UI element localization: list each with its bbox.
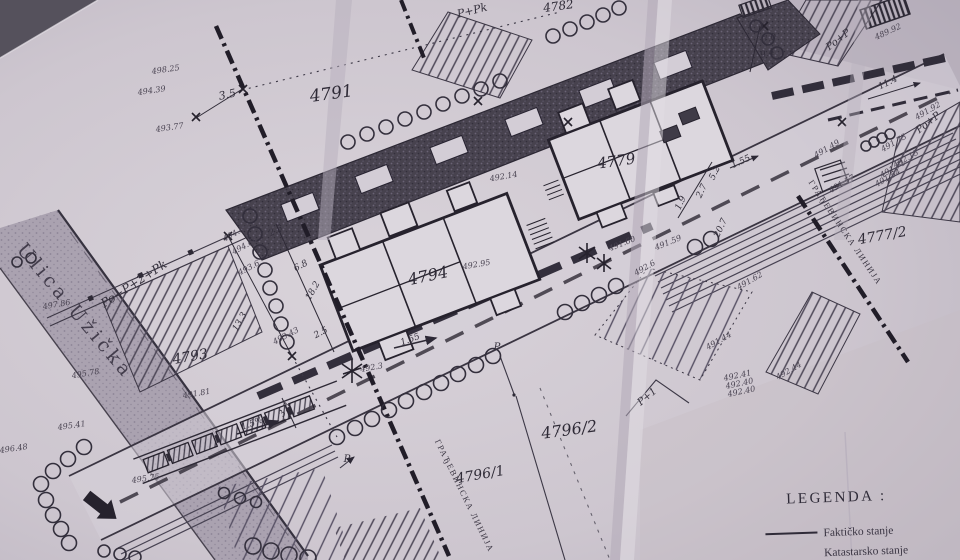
scanned-site-plan: LEGENDA : Faktičko stanje Katastarsko st… <box>0 0 960 560</box>
site-plan-canvas: LEGENDA : Faktičko stanje Katastarsko st… <box>0 0 960 560</box>
building-storey-label: P <box>493 342 501 353</box>
legend-item-fakticko: Faktičko stanje <box>823 525 893 539</box>
building-storey-label: P <box>343 454 351 465</box>
